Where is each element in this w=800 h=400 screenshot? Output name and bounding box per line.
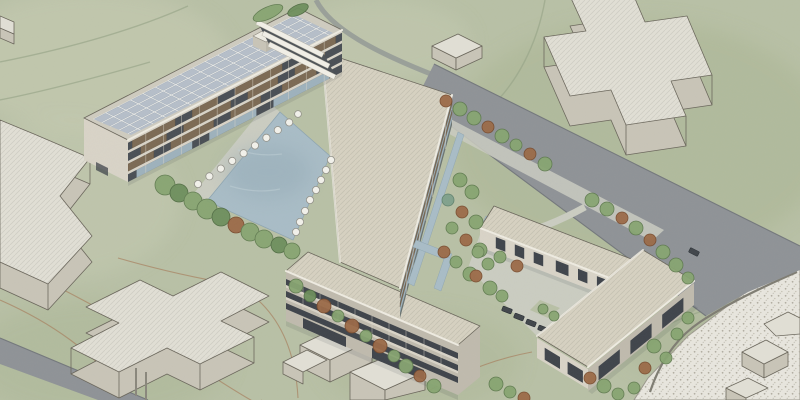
site-plan-canvas: Watercolor-style aerial rendering of a c… (0, 0, 800, 400)
watercolor-grain-overlay (0, 0, 800, 400)
architectural-rendering: Watercolor-style aerial rendering of a c… (0, 0, 800, 400)
